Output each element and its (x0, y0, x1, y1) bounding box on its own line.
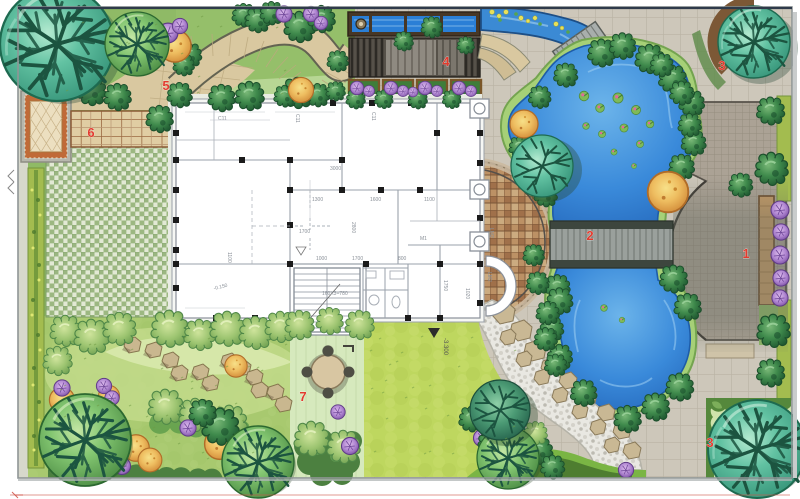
svg-text:4: 4 (442, 54, 450, 69)
svg-text:1: 1 (742, 246, 749, 261)
svg-text:1100: 1100 (226, 252, 232, 263)
svg-text:-3.300: -3.300 (442, 338, 448, 356)
svg-text:1600: 1600 (370, 197, 381, 203)
svg-text:5: 5 (162, 78, 169, 93)
svg-text:1100: 1100 (424, 197, 435, 203)
svg-text:LM2: LM2 (488, 228, 494, 238)
svg-text:7: 7 (299, 389, 306, 404)
svg-text:1300: 1300 (312, 197, 323, 203)
svg-text:6: 6 (87, 125, 94, 140)
svg-text:3: 3 (718, 58, 725, 73)
svg-text:1700: 1700 (299, 229, 310, 235)
svg-text:3000: 3000 (330, 166, 341, 172)
svg-text:1700: 1700 (352, 256, 363, 262)
svg-text:C11: C11 (294, 114, 300, 123)
svg-text:2: 2 (586, 228, 593, 243)
svg-text:160X3=780: 160X3=780 (322, 291, 348, 297)
svg-text:1750: 1750 (442, 280, 448, 291)
svg-text:M1: M1 (420, 236, 427, 242)
svg-text:1000: 1000 (316, 256, 327, 262)
svg-text:LM2: LM2 (486, 272, 492, 282)
svg-text:2800: 2800 (350, 222, 356, 233)
svg-text:800: 800 (398, 256, 407, 262)
svg-text:1020: 1020 (464, 288, 470, 299)
svg-text:C11: C11 (370, 112, 376, 121)
svg-text:3: 3 (706, 435, 713, 450)
svg-text:C11: C11 (218, 116, 227, 122)
